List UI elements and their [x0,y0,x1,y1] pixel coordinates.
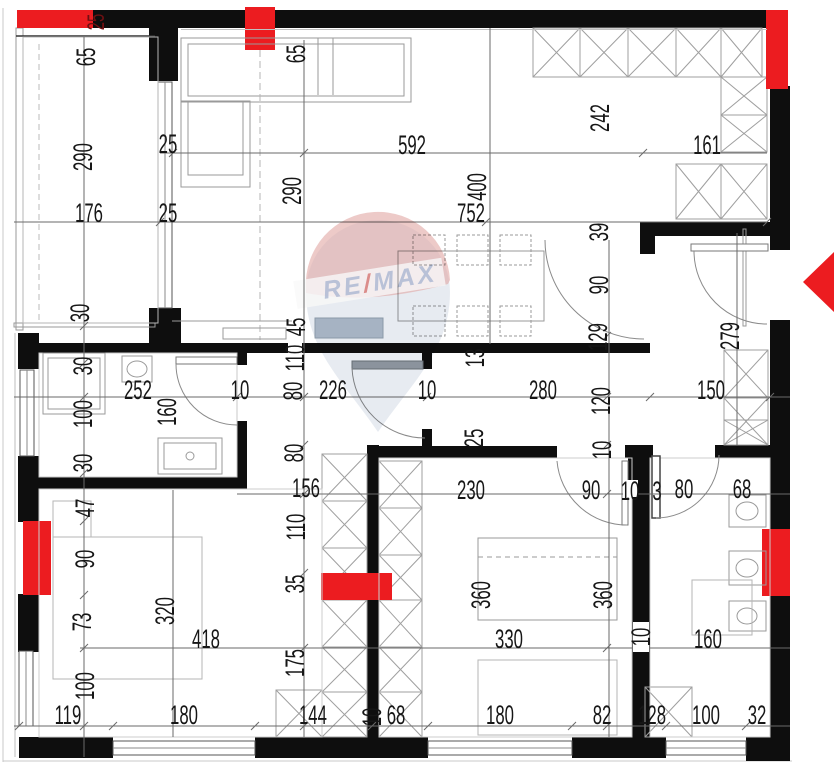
svg-text:320: 320 [150,597,180,625]
svg-text:100: 100 [692,700,720,730]
svg-text:10: 10 [621,476,640,506]
svg-text:30: 30 [65,304,95,323]
svg-text:90: 90 [584,276,614,295]
svg-text:90: 90 [70,550,100,569]
svg-text:280: 280 [529,375,557,405]
svg-text:45: 45 [281,318,311,337]
svg-text:10: 10 [418,375,437,405]
svg-text:100: 100 [70,672,100,700]
svg-text:330: 330 [495,624,523,654]
svg-text:230: 230 [457,475,485,505]
svg-text:39: 39 [584,223,614,242]
svg-text:68: 68 [733,474,752,504]
svg-text:10: 10 [587,441,617,460]
svg-text:13: 13 [460,349,490,368]
svg-text:30: 30 [68,357,98,376]
svg-text:144: 144 [299,700,327,730]
svg-text:156: 156 [292,473,320,503]
svg-text:82: 82 [593,700,612,730]
svg-text:150: 150 [697,375,725,405]
svg-text:10: 10 [231,375,250,405]
svg-text:90: 90 [582,475,601,505]
svg-text:110: 110 [281,514,311,541]
svg-text:119: 119 [55,700,82,730]
svg-text:25: 25 [159,129,178,159]
svg-text:10: 10 [626,628,656,647]
svg-text:25: 25 [459,429,489,448]
svg-text:47: 47 [70,499,100,518]
svg-text:120: 120 [586,387,616,415]
svg-text:80: 80 [675,474,694,504]
svg-text:160: 160 [694,624,722,654]
svg-text:10: 10 [357,708,387,727]
svg-text:592: 592 [398,130,426,160]
svg-text:176: 176 [75,198,103,228]
svg-text:252: 252 [124,375,152,405]
svg-text:25: 25 [159,198,178,228]
svg-text:110: 110 [280,345,310,372]
svg-text:180: 180 [170,700,198,730]
svg-text:290: 290 [277,177,307,205]
svg-text:3: 3 [652,476,661,506]
svg-text:128: 128 [638,700,666,730]
svg-text:68: 68 [387,700,406,730]
svg-text:242: 242 [585,104,615,132]
svg-text:73: 73 [67,613,97,632]
svg-text:290: 290 [68,143,98,171]
svg-text:35: 35 [280,575,310,594]
svg-text:80: 80 [278,382,308,401]
svg-text:65: 65 [281,45,311,64]
svg-text:129: 129 [583,323,613,351]
svg-text:32: 32 [748,700,767,730]
svg-text:279: 279 [715,322,745,350]
svg-text:175: 175 [280,649,310,677]
svg-text:360: 360 [466,581,496,609]
svg-text:180: 180 [486,700,514,730]
svg-text:360: 360 [588,581,618,609]
svg-text:752: 752 [457,198,485,228]
svg-text:160: 160 [152,398,182,426]
svg-text:25: 25 [84,14,110,31]
svg-text:418: 418 [192,624,220,654]
svg-text:80: 80 [279,444,309,463]
svg-text:400: 400 [462,173,492,201]
svg-text:161: 161 [693,130,721,160]
svg-text:65: 65 [71,48,101,67]
svg-text:30: 30 [68,454,98,473]
svg-text:100: 100 [68,400,98,428]
